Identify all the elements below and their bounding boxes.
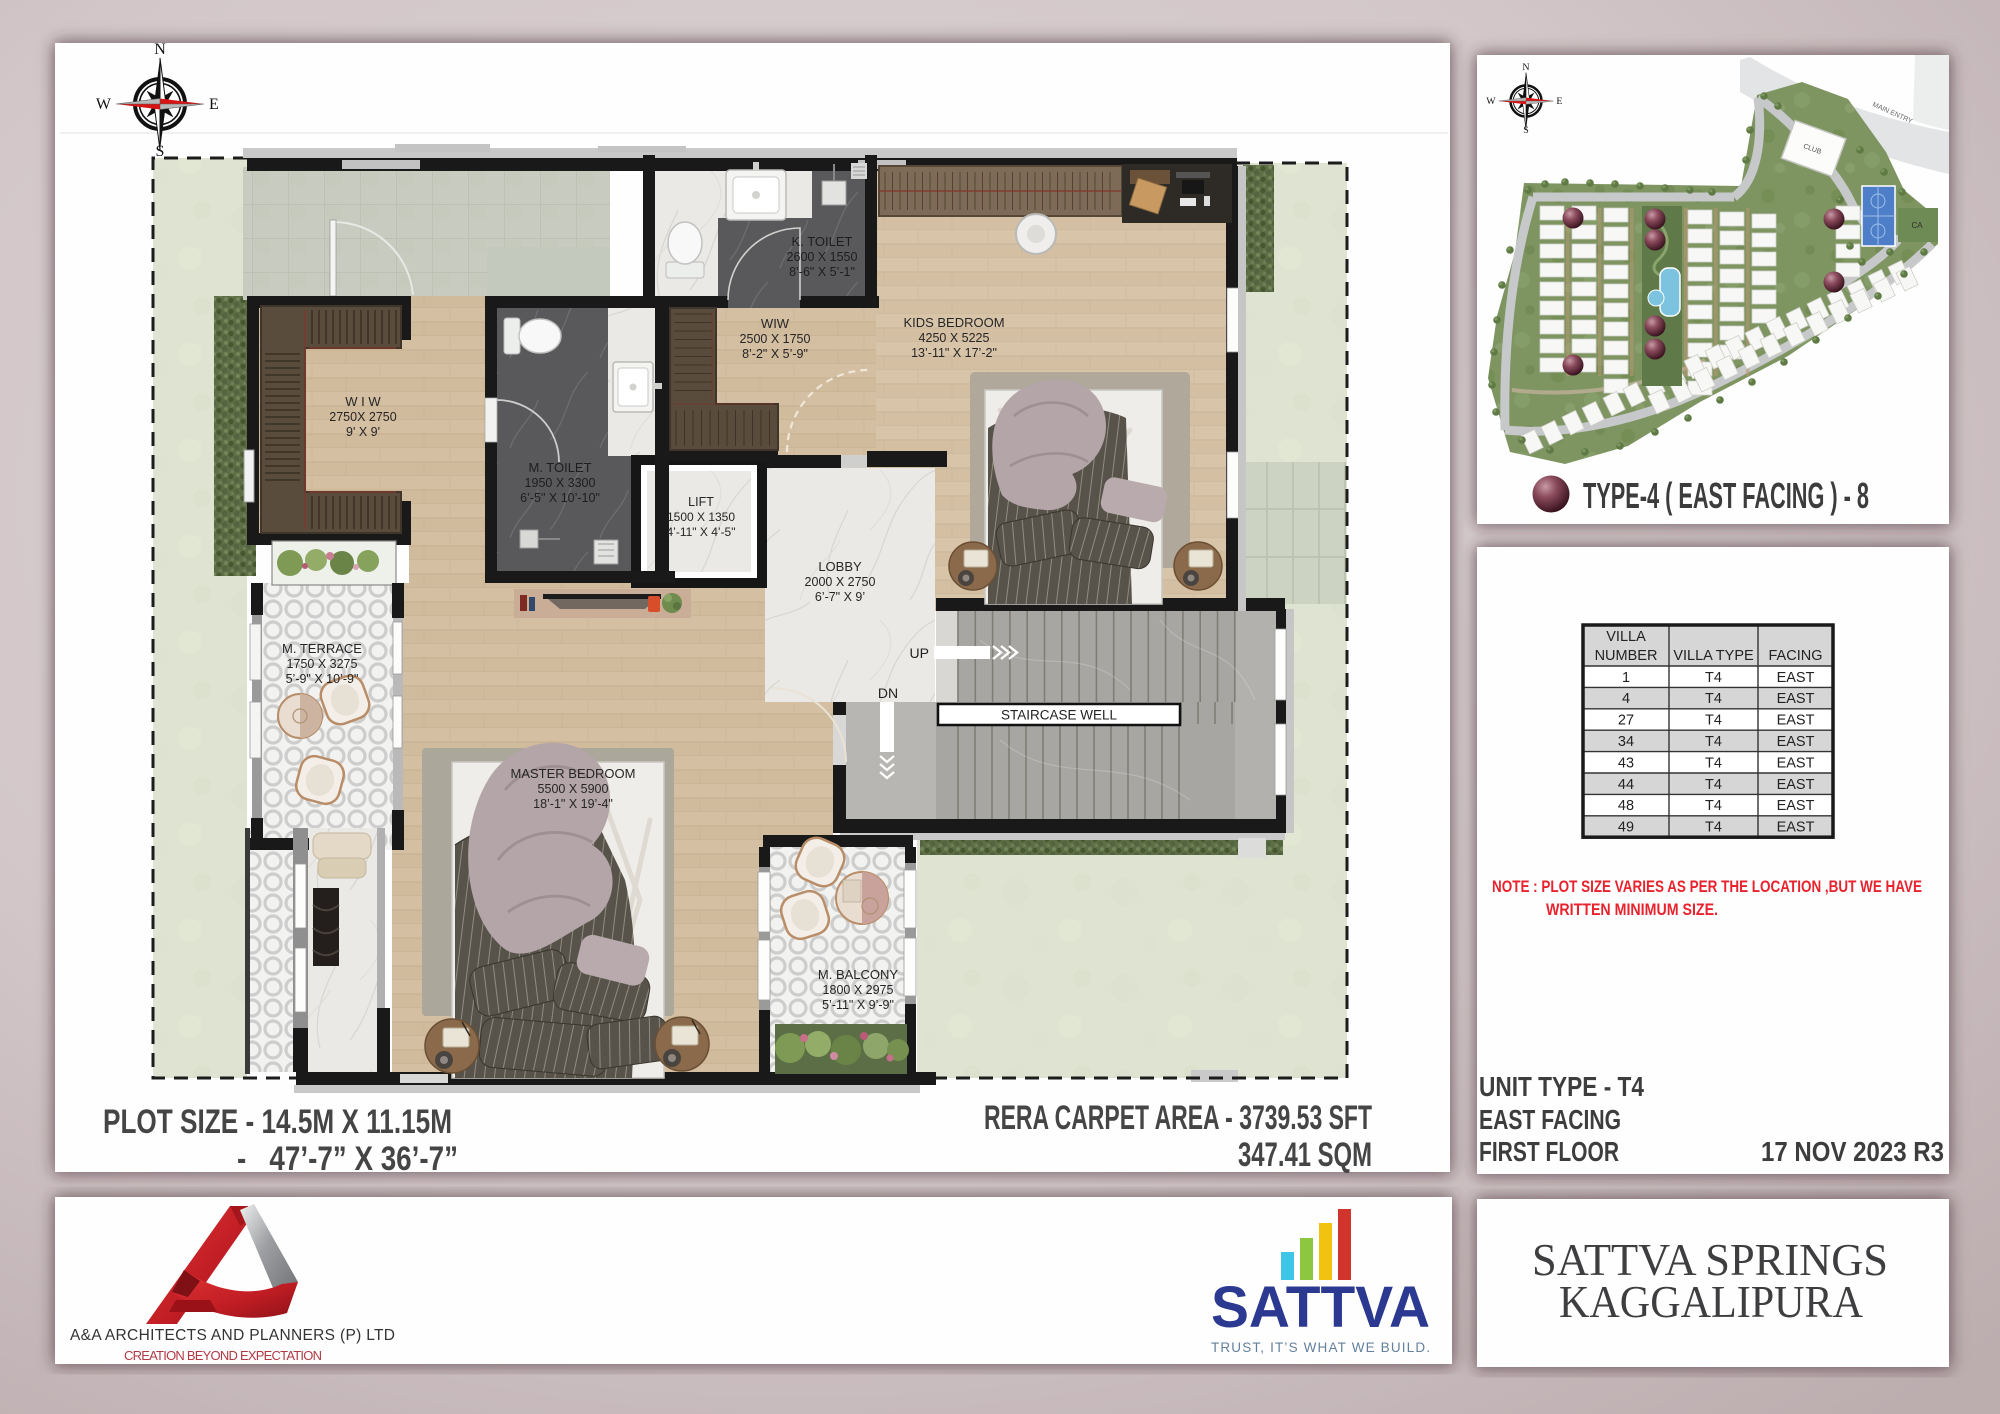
svg-text:K. TOILET: K. TOILET <box>792 234 853 249</box>
svg-text:VILLA: VILLA <box>1606 629 1646 645</box>
svg-text:EAST: EAST <box>1777 798 1815 814</box>
svg-text:TYPE-4 ( EAST FACING ) - 8: TYPE-4 ( EAST FACING ) - 8 <box>1583 475 1869 516</box>
svg-text:KAGGALIPURA: KAGGALIPURA <box>1559 1276 1863 1327</box>
svg-text:EAST: EAST <box>1777 820 1815 836</box>
svg-text:27: 27 <box>1618 713 1634 729</box>
svg-text:NOTE : PLOT SIZE VARIES AS PER: NOTE : PLOT SIZE VARIES AS PER THE LOCAT… <box>1492 877 1922 896</box>
svg-text:TRUST, IT’S WHAT WE BUILD.: TRUST, IT’S WHAT WE BUILD. <box>1211 1340 1430 1355</box>
svg-text:S: S <box>156 143 165 160</box>
svg-text:8’-6" X 5’-1": 8’-6" X 5’-1" <box>789 265 855 279</box>
svg-text:T4: T4 <box>1705 755 1722 771</box>
svg-text:4250 X 5225: 4250 X 5225 <box>919 331 990 345</box>
svg-text:9' X 9': 9' X 9' <box>346 425 380 439</box>
svg-text:KIDS BEDROOM: KIDS BEDROOM <box>903 315 1004 330</box>
svg-text:43: 43 <box>1618 755 1634 771</box>
svg-text:E: E <box>209 96 219 113</box>
svg-text:5’-9" X 10’-9": 5’-9" X 10’-9" <box>286 672 359 686</box>
svg-text:T4: T4 <box>1705 734 1722 750</box>
svg-text:LIFT: LIFT <box>688 495 714 509</box>
svg-text:SATTVA: SATTVA <box>1211 1275 1430 1340</box>
svg-text:347.41 SQM: 347.41 SQM <box>1238 1136 1372 1174</box>
svg-text:- 47’-7” X 36’-7”: - 47’-7” X 36’-7” <box>237 1140 458 1178</box>
svg-text:LOBBY: LOBBY <box>818 559 862 574</box>
svg-text:8’-2" X 5’-9": 8’-2" X 5’-9" <box>742 347 808 361</box>
svg-text:2600 X 1550: 2600 X 1550 <box>787 250 858 264</box>
svg-text:EAST: EAST <box>1777 670 1815 686</box>
svg-text:49: 49 <box>1618 820 1634 836</box>
svg-text:34: 34 <box>1618 734 1634 750</box>
svg-text:48: 48 <box>1618 798 1634 814</box>
svg-text:18’-1" X 19’-4": 18’-1" X 19’-4" <box>533 797 613 811</box>
svg-text:W: W <box>1486 96 1496 107</box>
svg-text:T4: T4 <box>1705 691 1722 707</box>
svg-text:5’-11" X 9’-9": 5’-11" X 9’-9" <box>822 998 894 1012</box>
svg-text:FACING: FACING <box>1769 648 1823 664</box>
svg-text:5500 X 5900: 5500 X 5900 <box>538 782 609 796</box>
svg-text:44: 44 <box>1618 777 1634 793</box>
svg-text:WRITTEN MINIMUM SIZE.: WRITTEN MINIMUM SIZE. <box>1546 900 1718 919</box>
svg-text:2500 X 1750: 2500 X 1750 <box>740 332 811 346</box>
svg-text:WIW: WIW <box>761 316 790 331</box>
svg-text:VILLA TYPE: VILLA TYPE <box>1673 648 1754 664</box>
svg-text:M. TOILET: M. TOILET <box>528 460 591 475</box>
svg-text:FIRST FLOOR: FIRST FLOOR <box>1479 1136 1619 1167</box>
svg-text:W: W <box>96 96 112 113</box>
svg-text:EAST: EAST <box>1777 755 1815 771</box>
svg-text:M. TERRACE: M. TERRACE <box>282 641 362 656</box>
svg-text:4’-11" X 4’-5": 4’-11" X 4’-5" <box>667 525 736 539</box>
svg-text:1500 X 1350: 1500 X 1350 <box>667 510 735 524</box>
svg-text:1800 X 2975: 1800 X 2975 <box>823 983 894 997</box>
svg-text:EAST: EAST <box>1777 734 1815 750</box>
svg-text:W I W: W I W <box>345 394 381 409</box>
svg-text:NUMBER: NUMBER <box>1595 648 1658 664</box>
svg-text:13’-11" X 17’-2": 13’-11" X 17’-2" <box>911 346 997 360</box>
svg-text:CA: CA <box>1911 221 1923 230</box>
svg-text:2750X 2750: 2750X 2750 <box>329 410 396 424</box>
svg-text:STAIRCASE WELL: STAIRCASE WELL <box>1001 708 1118 723</box>
svg-text:1750 X 3275: 1750 X 3275 <box>287 657 358 671</box>
svg-text:N: N <box>154 41 166 58</box>
svg-text:S: S <box>1523 125 1529 136</box>
svg-text:6’-7" X 9’: 6’-7" X 9’ <box>815 590 865 604</box>
svg-text:T4: T4 <box>1705 670 1722 686</box>
svg-text:M. BALCONY: M. BALCONY <box>818 967 899 982</box>
svg-text:RERA CARPET AREA - 3739.53 SFT: RERA CARPET AREA - 3739.53 SFT <box>984 1099 1372 1137</box>
svg-text:EAST FACING: EAST FACING <box>1479 1104 1621 1135</box>
svg-text:UP: UP <box>910 645 929 661</box>
svg-text:EAST: EAST <box>1777 691 1815 707</box>
svg-text:CREATION BEYOND EXPECTATION: CREATION BEYOND EXPECTATION <box>124 1348 322 1363</box>
svg-text:PLOT SIZE - 14.5M X 11.15M: PLOT SIZE - 14.5M X 11.15M <box>103 1103 452 1141</box>
svg-text:2000 X 2750: 2000 X 2750 <box>805 575 876 589</box>
svg-text:1950 X 3300: 1950 X 3300 <box>525 476 596 490</box>
svg-text:DN: DN <box>878 685 898 701</box>
svg-text:T4: T4 <box>1705 820 1722 836</box>
svg-text:T4: T4 <box>1705 777 1722 793</box>
svg-text:MASTER BEDROOM: MASTER BEDROOM <box>511 766 636 781</box>
svg-text:N: N <box>1522 62 1529 73</box>
svg-text:EAST: EAST <box>1777 777 1815 793</box>
svg-text:1: 1 <box>1622 670 1630 686</box>
svg-text:4: 4 <box>1622 691 1630 707</box>
svg-text:UNIT TYPE - T4: UNIT TYPE - T4 <box>1479 1071 1644 1102</box>
svg-text:A&A ARCHITECTS AND PLANNERS (P: A&A ARCHITECTS AND PLANNERS (P) LTD <box>70 1327 395 1344</box>
svg-text:EAST: EAST <box>1777 713 1815 729</box>
svg-text:E: E <box>1556 96 1562 107</box>
svg-text:17 NOV 2023 R3: 17 NOV 2023 R3 <box>1761 1136 1944 1167</box>
svg-text:T4: T4 <box>1705 798 1722 814</box>
svg-text:T4: T4 <box>1705 713 1722 729</box>
svg-text:6’-5" X 10’-10": 6’-5" X 10’-10" <box>520 491 600 505</box>
